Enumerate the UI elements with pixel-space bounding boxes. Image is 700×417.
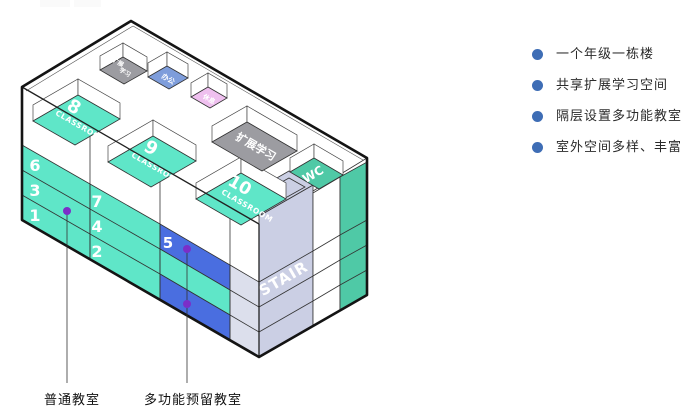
ordinary-classroom-label: 普通教室 — [44, 389, 100, 408]
classroom-number: 2 — [91, 242, 102, 261]
classroom-number: 3 — [29, 181, 40, 200]
bullet-icon — [532, 80, 543, 91]
multifunction-marker-lower — [183, 300, 191, 308]
bullet-icon — [532, 111, 543, 122]
classroom-number: 1 — [29, 206, 40, 225]
legend-text: 一个年级一栋楼 — [556, 47, 654, 61]
bullet-icon — [532, 142, 543, 153]
legend-item: 室外空间多样、丰富 — [532, 140, 682, 154]
legend-text: 隔层设置多功能教室 — [556, 109, 682, 123]
legend: 一个年级一栋楼 共享扩展学习空间 隔层设置多功能教室 室外空间多样、丰富 — [532, 47, 682, 171]
bullet-icon — [532, 49, 543, 60]
legend-text: 室外空间多样、丰富 — [556, 140, 682, 154]
legend-item: 隔层设置多功能教室 — [532, 109, 682, 123]
classroom-number: 7 — [91, 192, 102, 211]
legend-item: 共享扩展学习空间 — [532, 78, 682, 92]
legend-text: 共享扩展学习空间 — [556, 78, 668, 92]
classroom-number-multifunction: 5 — [163, 234, 173, 252]
legend-item: 一个年级一栋楼 — [532, 47, 682, 61]
right-face-teal — [340, 162, 367, 310]
ordinary-classroom-marker — [63, 207, 71, 215]
multifunction-classroom-label: 多功能预留教室 — [144, 389, 242, 408]
classroom-number: 4 — [91, 217, 102, 236]
classroom-number: 6 — [29, 156, 40, 175]
right-face-white — [313, 177, 340, 326]
school-building-diagram-page: STAIR 6 3 1 7 4 2 5 — [0, 0, 700, 417]
multifunction-marker-upper — [183, 245, 191, 253]
